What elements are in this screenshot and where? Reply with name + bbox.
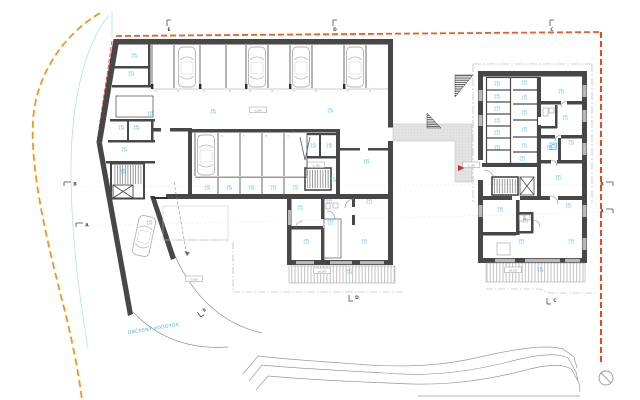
floorplan-canvas: 1.02-3,041.03-3,041.04-3,041.05-3,041.06…: [0, 0, 640, 400]
room-label: 1.27-1,10: [521, 80, 528, 86]
room-label: 1.29-1,10: [521, 110, 528, 116]
room-label: 3.07-1,10: [522, 218, 529, 224]
room-label: 1.08-3,04: [120, 169, 127, 175]
room-label: 2.06-1,10: [361, 239, 368, 245]
room-label: 1.28-1,10: [521, 95, 528, 101]
parking-number: 05: [249, 91, 252, 93]
room-label: 1.06-3,04: [133, 125, 140, 131]
room-label: 2.03-1,10: [366, 199, 373, 205]
right-building: [473, 64, 597, 293]
terrace: [486, 263, 585, 282]
parking-number: 07: [293, 91, 296, 93]
room-label: 1.21-1,10: [494, 81, 501, 87]
parking-number: 13: [243, 136, 246, 138]
room-label: 3.06-1,10: [497, 207, 504, 213]
room-label: 1.17-3,04: [330, 177, 337, 183]
parking-number: 04: [229, 91, 232, 93]
section-letter: E: [202, 307, 208, 314]
retaining-wedge: [455, 75, 473, 97]
room-label: 2.02-1,10: [326, 199, 333, 205]
elevator-icon: [113, 185, 133, 198]
interior-walls-lower: [482, 196, 587, 236]
terrace: [289, 266, 395, 283]
section-letter: B: [73, 182, 77, 188]
parking-number: 15: [287, 136, 290, 138]
section-letter: C: [553, 298, 556, 304]
room-label: 1.04-3,04: [147, 111, 154, 117]
room-label: 1.22-1,10: [494, 94, 501, 100]
parking-number: 10: [369, 91, 372, 93]
room-label: 1.31-1,10: [521, 143, 528, 149]
room-label: 1.32-1,10: [519, 156, 526, 162]
north-arrow-icon: [599, 371, 613, 385]
room-label: 1.05-3,04: [118, 125, 125, 131]
section-letter: D: [355, 295, 359, 301]
room-label: 2.01-1,10: [297, 205, 304, 211]
section-letter: B: [600, 182, 604, 188]
room-label: 2.05-1,10: [303, 239, 310, 245]
room-label: 1.12-3,04: [248, 185, 255, 191]
garage-door: [151, 197, 168, 199]
room-label: 2.07-1,08: [346, 269, 353, 275]
overhang-dashdot: [486, 289, 597, 293]
room-label: 3.11-1,08: [537, 267, 544, 273]
room-label: 1.16-3,04: [326, 143, 333, 149]
room-label: 1.18-3,04: [363, 159, 370, 165]
car-icon: [249, 47, 266, 87]
room-label: 2.04-1,10: [327, 220, 334, 226]
room-label: 3.03-1,10: [568, 140, 575, 146]
floorplan-drawing: 1.02-3,041.03-3,041.04-3,041.05-3,041.06…: [0, 0, 640, 400]
room-label: 1.30-1,10: [521, 127, 528, 133]
parking-number: 09: [347, 91, 350, 93]
section-marker-b: B: [600, 182, 613, 188]
room-label: 3.05-1,10: [555, 175, 562, 181]
elevation-label: ±0,000: [509, 270, 518, 273]
car-icon: [198, 135, 215, 175]
car-icon: [132, 215, 157, 258]
staircase-icon: [307, 170, 329, 188]
section-marker-d: D: [349, 295, 359, 301]
elevation-label: ±0,000: [318, 271, 327, 274]
corridor-walkway: [393, 75, 473, 182]
room-label: 3.09-1,10: [518, 239, 525, 245]
parking-number: 12: [221, 136, 224, 138]
elevation-label: -1,100: [312, 165, 320, 168]
room-label: 1.15-3,04: [310, 143, 317, 149]
room-label: 1.02-3,04: [131, 53, 138, 59]
parking-number: 01: [155, 91, 158, 93]
room-label: 1.01-3,04: [327, 108, 334, 114]
room-label: 1.24-1,10: [494, 118, 501, 124]
room-label: 3.08-1,10: [565, 203, 572, 209]
room-label: 1.25-1,10: [494, 130, 501, 136]
parking-number: 06: [271, 91, 274, 93]
staircase-icon: [494, 179, 516, 193]
car-icon: [293, 47, 310, 87]
room-label: 1.26-1,10: [494, 145, 501, 151]
car-icon: [179, 47, 196, 87]
parking-number: 02: [177, 91, 180, 93]
cars-layer: [132, 47, 364, 257]
room-label: 3.01-1,10: [558, 89, 565, 95]
paving-outline: [163, 206, 228, 240]
section-letter: E: [168, 27, 171, 33]
parking-number: 14: [265, 136, 268, 138]
parking-number: 03: [203, 91, 206, 93]
roof-outline-dashdot: [473, 64, 592, 203]
elevation-label: -0,350: [190, 279, 198, 282]
retaining-wedge: [427, 113, 441, 128]
section-marker-e: E: [197, 307, 207, 317]
site-boundary: [33, 12, 601, 400]
stream-annotation: OBČASNÝ VODOTOK: [127, 321, 180, 336]
section-marker-b: B: [64, 182, 77, 188]
room-label: 1.23-1,10: [494, 106, 501, 112]
room-label: 1.01-3,04: [210, 109, 217, 115]
driveway-arc: [176, 258, 262, 333]
elevation-label: -3,040: [254, 110, 262, 113]
room-label: 1.11-3,04: [226, 185, 233, 191]
car-icon: [347, 47, 364, 87]
room-label: 1.10-3,04: [204, 185, 211, 191]
section-letter: D: [333, 27, 337, 33]
section-marker-c: C: [547, 298, 557, 304]
room-label: 1.07-3,04: [121, 147, 128, 153]
staircase-icon: [113, 165, 142, 184]
parking-number: 08: [315, 91, 318, 93]
room-label: 1.13-3,04: [270, 185, 277, 191]
elevator-icon: [520, 177, 534, 195]
elevation-label: -1,100: [467, 165, 475, 168]
section-marker-a: A: [600, 209, 613, 215]
room-walls-right: [340, 148, 388, 151]
section-marker-a: A: [76, 223, 89, 229]
section-letter: C: [550, 27, 553, 33]
room-label: 3.10-1,10: [568, 239, 575, 245]
section-letter: A: [85, 223, 89, 229]
windows: [288, 210, 384, 264]
ramp-direction-arrow: [185, 251, 191, 256]
contour-lines: [243, 347, 580, 396]
room-label: 1.14-3,04: [292, 185, 299, 191]
room-label: 1.03-3,04: [128, 71, 135, 77]
section-letter: A: [600, 209, 604, 215]
room-label: 3.02-1,10: [562, 115, 569, 121]
room-label: 1.19-2,10: [146, 220, 153, 226]
